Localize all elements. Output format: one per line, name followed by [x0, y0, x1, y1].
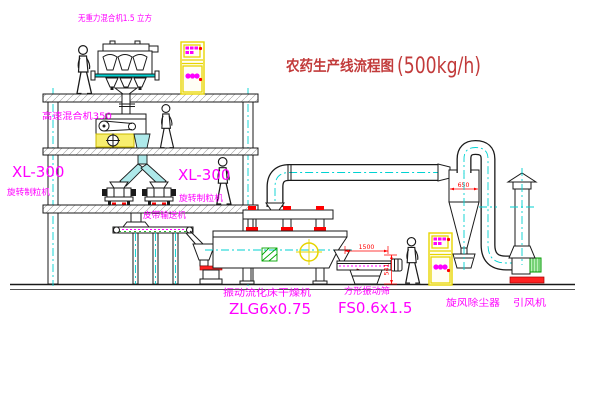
- label-high-speed-mixer: 高速混合机350: [42, 110, 112, 122]
- label-belt-conveyor: 皮带输送机: [143, 210, 186, 221]
- process-flow-diagram: 1500 541 650: [0, 0, 600, 403]
- label-sieve-model: FS0.6x1.5: [338, 299, 412, 317]
- granulator-right: [142, 182, 176, 205]
- person-second-floor: [161, 105, 174, 148]
- belt-conveyor: [113, 213, 203, 284]
- exhaust-duct: [275, 164, 446, 212]
- label-sieve-name: 方形振动筛: [344, 285, 390, 297]
- label-gravity-mixer: 无重力混合机1.5 立方: [78, 13, 152, 24]
- label-fan: 引风机: [513, 297, 547, 309]
- exhaust-stack: [508, 168, 536, 265]
- gravity-free-mixer: [91, 41, 159, 116]
- label-dryer-model: ZLG6x0.75: [229, 300, 311, 318]
- drawing-title-capacity: (500kg/h): [397, 54, 481, 79]
- person-top-floor: [77, 46, 92, 94]
- control-cabinet-ground: [429, 233, 452, 285]
- fluid-bed-dryer: [205, 203, 352, 284]
- label-granulator-model-left: XL-300: [12, 163, 64, 181]
- person-ground: [406, 238, 420, 284]
- dim-sieve-height: 541: [384, 264, 391, 276]
- y-splitter-chute: [120, 155, 166, 186]
- dim-cyclone-width: 650: [458, 182, 470, 189]
- label-granulator-name-left: 旋转制粒机: [7, 187, 50, 198]
- label-granulator-model-right: XL-300: [178, 166, 230, 184]
- label-cyclone: 旋风除尘器: [446, 297, 501, 309]
- label-dryer-name: 振动流化床干燥机: [223, 287, 312, 299]
- control-cabinet-top: [181, 42, 204, 94]
- cad-canvas: 1500 541 650: [0, 0, 600, 403]
- granulator-left: [102, 182, 136, 205]
- drawing-title: 农药生产线流程图: [285, 57, 394, 75]
- label-granulator-name-right: 旋转制粒机: [179, 193, 224, 204]
- dim-sieve-length: 1500: [359, 244, 375, 251]
